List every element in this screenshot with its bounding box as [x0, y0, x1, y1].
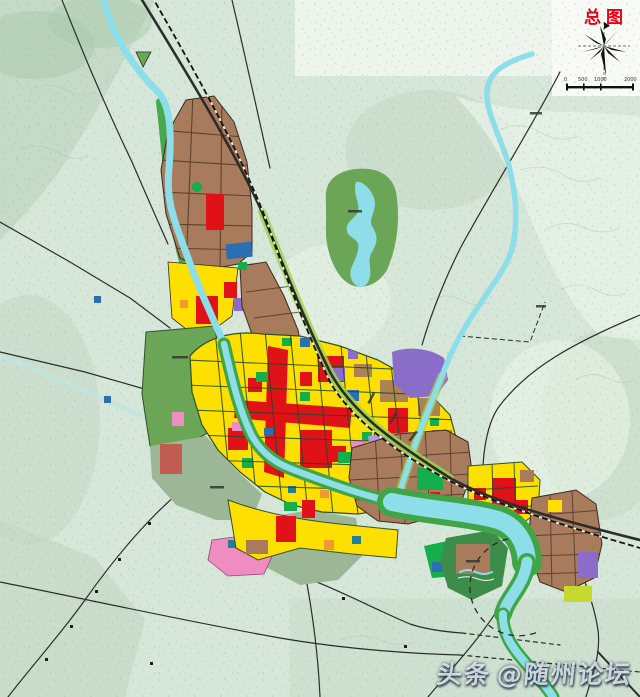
watermark: 头条@随州论坛 — [435, 655, 634, 691]
map-title: 总图 — [584, 3, 628, 28]
map-canvas: 0 500 1000 2000 — [0, 0, 640, 697]
scale-tick-500: 500 — [578, 77, 588, 83]
planning-map-page: 0 500 1000 2000 总图 头条@随州论坛 — [0, 0, 640, 697]
scale-tick-1000: 1000 — [594, 77, 607, 83]
north-lake-park — [326, 169, 398, 287]
watermark-account: @随州论坛 — [495, 660, 633, 689]
watermark-logo-text: 头条 — [435, 660, 492, 689]
scale-tick-0: 0 — [564, 77, 567, 83]
scale-tick-2000: 2000 — [624, 77, 637, 83]
